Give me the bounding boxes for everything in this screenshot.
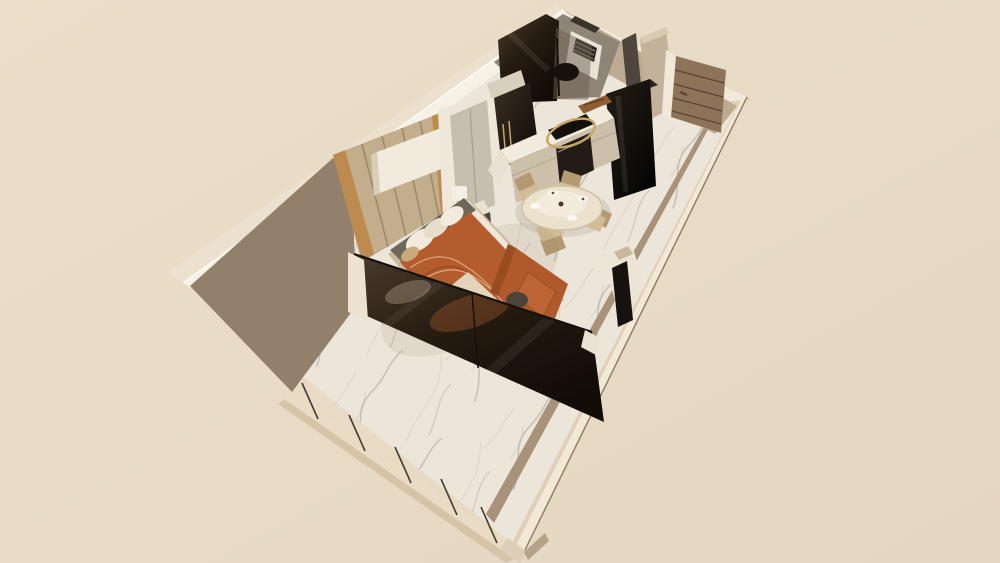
plate xyxy=(567,215,577,221)
centerpiece xyxy=(559,202,564,207)
food xyxy=(582,198,585,201)
food xyxy=(552,192,555,195)
floorplan-scene xyxy=(0,0,1000,563)
shower-fixture xyxy=(553,63,579,81)
apartment-render xyxy=(0,0,1000,563)
plate xyxy=(530,203,540,209)
